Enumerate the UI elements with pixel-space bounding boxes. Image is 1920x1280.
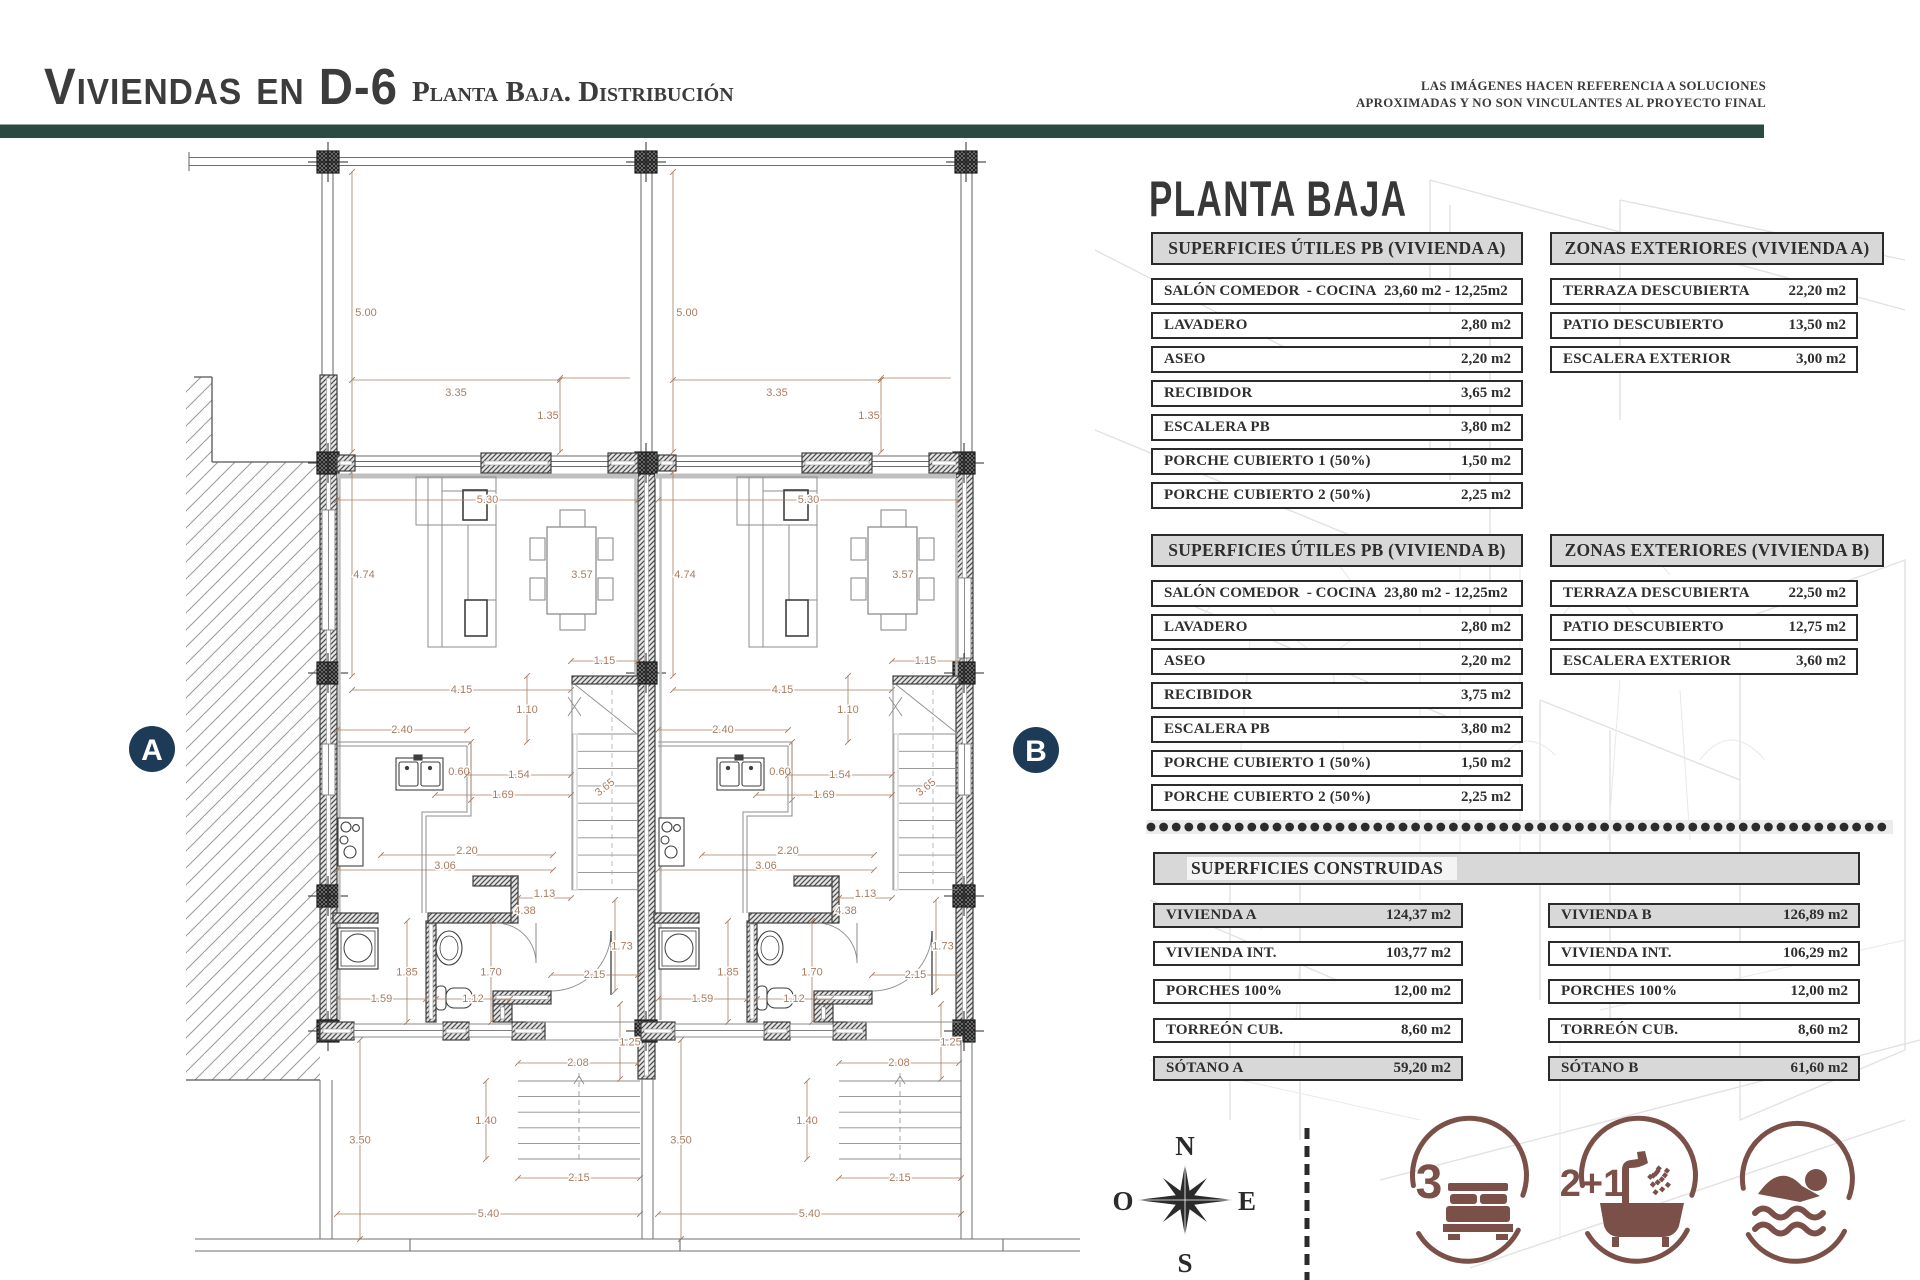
svg-text:1.73: 1.73 <box>611 941 632 953</box>
svg-text:2+1: 2+1 <box>1560 1163 1624 1205</box>
svg-text:3.57: 3.57 <box>892 569 913 581</box>
svg-text:2.15: 2.15 <box>889 1172 910 1184</box>
svg-text:1.69: 1.69 <box>813 789 834 801</box>
svg-text:4.74: 4.74 <box>674 569 695 581</box>
svg-text:3.35: 3.35 <box>766 387 787 399</box>
svg-text:1.12: 1.12 <box>462 993 483 1005</box>
svg-text:E: E <box>1238 1186 1256 1216</box>
svg-text:5.40: 5.40 <box>799 1208 820 1220</box>
svg-text:1.40: 1.40 <box>475 1115 496 1127</box>
svg-text:1.54: 1.54 <box>829 769 850 781</box>
svg-text:1.69: 1.69 <box>492 789 513 801</box>
svg-text:3: 3 <box>1416 1156 1443 1209</box>
svg-text:O: O <box>1112 1186 1133 1216</box>
svg-text:B: B <box>1025 735 1047 768</box>
svg-text:1.15: 1.15 <box>594 655 615 667</box>
svg-text:2.20: 2.20 <box>456 845 477 857</box>
svg-text:3.06: 3.06 <box>434 860 455 872</box>
svg-text:2.40: 2.40 <box>712 724 733 736</box>
svg-text:3.35: 3.35 <box>445 387 466 399</box>
svg-text:1.13: 1.13 <box>855 888 876 900</box>
svg-text:5.40: 5.40 <box>478 1208 499 1220</box>
svg-text:1.70: 1.70 <box>801 967 822 979</box>
svg-text:5.00: 5.00 <box>676 307 697 319</box>
svg-text:1.54: 1.54 <box>508 769 529 781</box>
svg-text:4.74: 4.74 <box>353 569 374 581</box>
svg-text:2.15: 2.15 <box>905 969 926 981</box>
svg-text:2.20: 2.20 <box>777 845 798 857</box>
svg-text:4.15: 4.15 <box>772 684 793 696</box>
svg-text:2.15: 2.15 <box>584 969 605 981</box>
svg-text:1.13: 1.13 <box>534 888 555 900</box>
svg-text:1.25: 1.25 <box>940 1037 961 1049</box>
svg-text:1.59: 1.59 <box>692 993 713 1005</box>
svg-text:1.85: 1.85 <box>717 967 738 979</box>
svg-text:1.59: 1.59 <box>371 993 392 1005</box>
svg-text:2.15: 2.15 <box>568 1172 589 1184</box>
svg-text:4.38: 4.38 <box>835 905 856 917</box>
svg-text:5.30: 5.30 <box>477 494 498 506</box>
svg-text:A: A <box>141 734 163 767</box>
svg-text:1.15: 1.15 <box>915 655 936 667</box>
svg-text:4.38: 4.38 <box>514 905 535 917</box>
svg-text:1.35: 1.35 <box>858 410 879 422</box>
svg-text:2.40: 2.40 <box>391 724 412 736</box>
svg-text:1.70: 1.70 <box>480 967 501 979</box>
svg-text:2.08: 2.08 <box>567 1057 588 1069</box>
svg-text:S: S <box>1177 1248 1192 1278</box>
svg-text:4.15: 4.15 <box>451 684 472 696</box>
svg-text:1.73: 1.73 <box>932 941 953 953</box>
svg-text:3.06: 3.06 <box>755 860 776 872</box>
svg-text:1.35: 1.35 <box>537 410 558 422</box>
svg-text:1.12: 1.12 <box>783 993 804 1005</box>
svg-text:1.85: 1.85 <box>396 967 417 979</box>
svg-text:1.25: 1.25 <box>619 1037 640 1049</box>
svg-text:1.10: 1.10 <box>516 704 537 716</box>
svg-text:2.08: 2.08 <box>888 1057 909 1069</box>
svg-text:3.50: 3.50 <box>670 1135 691 1147</box>
svg-text:1.40: 1.40 <box>796 1115 817 1127</box>
svg-text:5.30: 5.30 <box>798 494 819 506</box>
svg-text:5.00: 5.00 <box>355 307 376 319</box>
svg-text:N: N <box>1175 1131 1195 1161</box>
svg-text:1.10: 1.10 <box>837 704 858 716</box>
svg-text:3.50: 3.50 <box>349 1135 370 1147</box>
svg-text:3.57: 3.57 <box>571 569 592 581</box>
